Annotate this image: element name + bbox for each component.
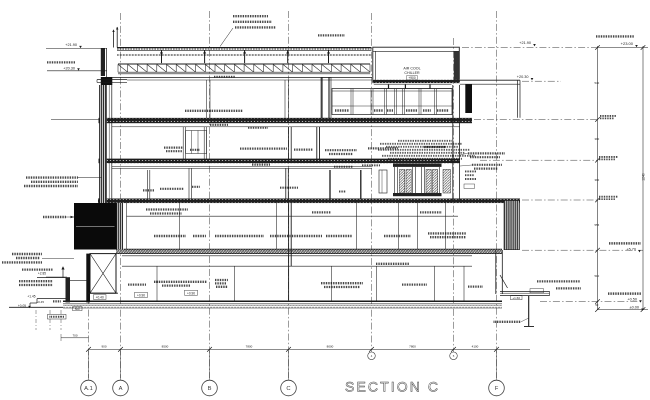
svg-text:+23.00: +23.00 [621,41,634,46]
svg-text:7800: 7800 [246,345,253,349]
svg-text:F: F [495,386,499,392]
svg-text:+900: +900 [408,76,415,80]
svg-text:1240: 1240 [642,173,646,181]
svg-text:8000: 8000 [327,345,334,349]
svg-text:+0.90: +0.90 [187,291,195,295]
svg-text:+1.60: +1.60 [512,296,520,300]
svg-text:540: 540 [594,81,599,85]
svg-text:510: 510 [594,274,599,278]
svg-text:+21.90: +21.90 [65,43,77,47]
svg-text:+0.90: +0.90 [137,294,145,298]
svg-text:+1.45: +1.45 [27,294,35,298]
svg-text:+0.45: +0.45 [36,300,44,304]
svg-text:+2.85: +2.85 [38,272,46,276]
svg-text:C: C [286,386,290,392]
svg-text:7800: 7800 [409,345,416,349]
svg-text:500: 500 [75,307,80,311]
svg-text:+0.40: +0.40 [96,296,104,300]
svg-text:A.1: A.1 [84,386,93,392]
svg-text:+0.50: +0.50 [627,297,637,301]
svg-text:390: 390 [594,178,599,182]
svg-text:+20.30: +20.30 [63,66,75,70]
svg-text:555: 555 [594,223,599,227]
svg-text:SECTION C: SECTION C [345,378,440,394]
svg-text:8500: 8500 [162,345,169,349]
svg-text:+21.90: +21.90 [519,41,531,45]
svg-text:B: B [208,386,212,392]
svg-text:50: 50 [595,303,599,307]
svg-text:4100: 4100 [472,345,479,349]
svg-text:+5.70: +5.70 [626,248,636,252]
svg-text:900: 900 [101,345,106,349]
svg-text:+0.05: +0.05 [18,304,26,308]
svg-text:390: 390 [594,137,599,141]
svg-text:+20.30: +20.30 [517,75,529,79]
svg-text:AIR COOL: AIR COOL [403,67,420,71]
svg-text:700: 700 [72,334,77,338]
svg-text:A: A [119,386,123,392]
svg-text:±0.00: ±0.00 [630,306,639,310]
svg-text:CHILLER: CHILLER [404,71,420,75]
